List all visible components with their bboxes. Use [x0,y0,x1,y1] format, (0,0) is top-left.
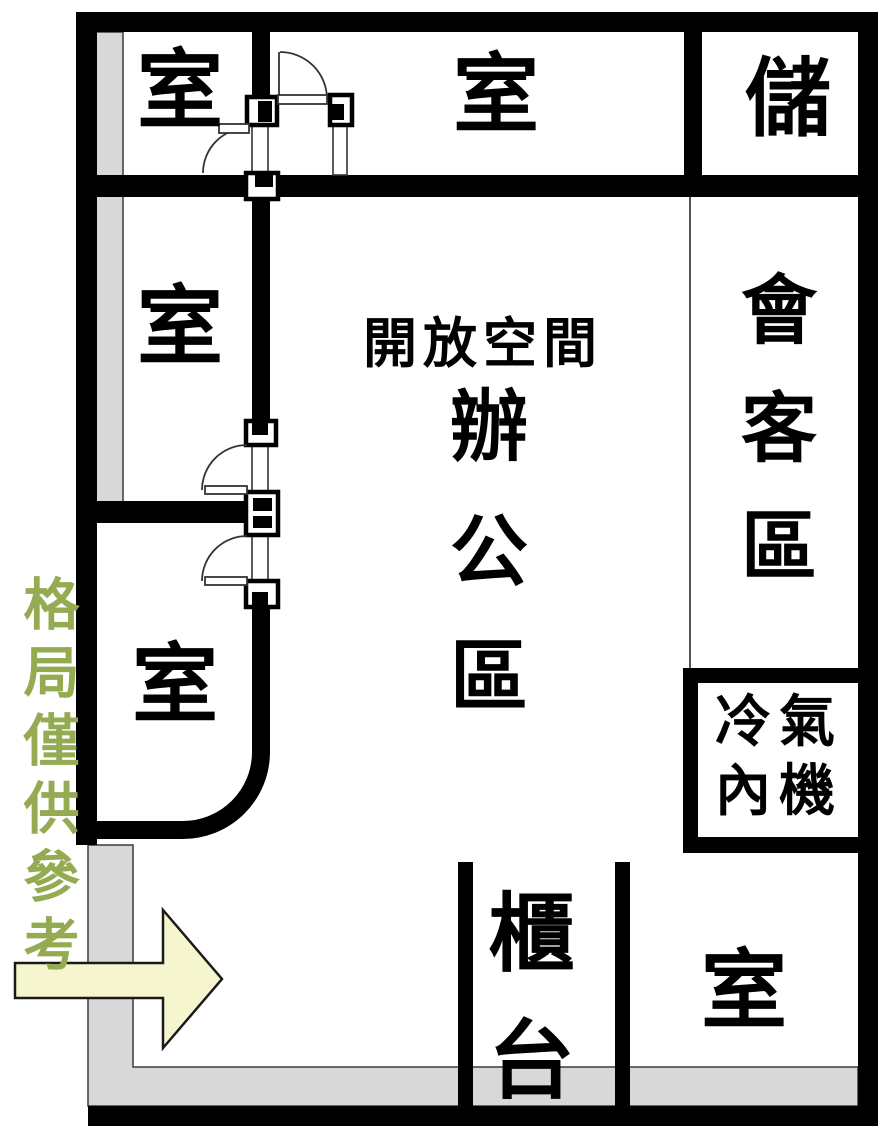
room-label-bottom-right: 室 [694,948,794,1034]
wall-openoffice-top [277,175,858,197]
room-label-storage: 儲 [738,56,838,142]
door-jamb [246,173,278,199]
door-channel [333,125,347,175]
wall-right [858,12,878,1126]
counter-bar-right [615,862,630,1126]
door-swing-icon [202,445,247,494]
wall-vestibule-upper [252,32,270,97]
door-jamb [247,97,277,125]
counter-bar-left [458,862,473,1126]
door-channel [252,125,268,173]
counter-label: 櫃台 [480,888,566,1136]
room-label-mid-left: 室 [130,284,230,370]
door-jamb [246,492,278,535]
wall-left [76,12,97,845]
wall-divider-room1-room2 [76,175,247,197]
room-label-top-left: 室 [130,48,230,134]
open-office-label-line1: 開放空間 [318,317,648,371]
door-jamb [330,95,352,125]
door-jamb [246,581,278,607]
door-swing-icon [202,536,247,585]
plan-disclaimer-note: 格局僅供參考 [18,575,74,983]
door-channel [252,445,268,492]
ac-unit-label-line2: 內機 [714,764,844,820]
wall-top [76,12,878,32]
room-label-top-middle: 室 [446,52,546,138]
wall-room2-right [252,199,270,423]
door-channel [252,535,268,581]
wall-storage-divider [684,32,702,175]
window-strip-left [93,32,123,503]
door-swing-icon [278,52,327,104]
wall-divider-room2-room3 [76,501,246,523]
ac-unit-label-line1: 冷氣 [714,695,844,751]
floor-plan: 室 室 儲 室 會客區 開放空間 辦公區 室 冷氣 內機 櫃台 室 格局僅供參考 [0,0,889,1136]
room-label-reception: 會客區 [734,270,810,624]
open-office-label-line2: 辦公區 [443,385,521,760]
door-jamb [246,421,276,445]
room-label-bottom-left: 室 [125,642,225,728]
